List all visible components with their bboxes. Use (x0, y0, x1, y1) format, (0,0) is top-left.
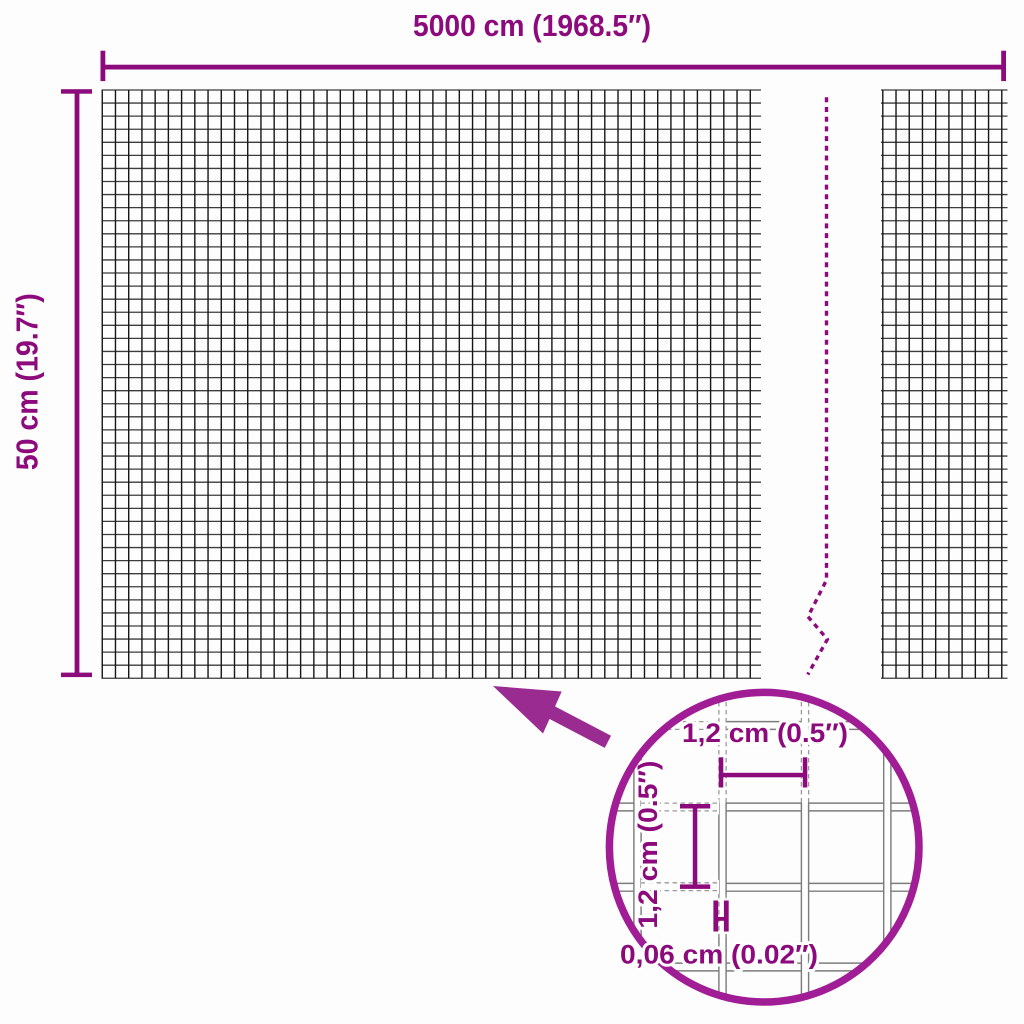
svg-text:5000 cm (1968.5″): 5000 cm (1968.5″) (413, 8, 651, 43)
svg-text:0,06 cm (0.02″): 0,06 cm (0.02″) (620, 940, 818, 970)
svg-text:50 cm (19.7″): 50 cm (19.7″) (10, 293, 45, 470)
svg-text:1,2 cm (0.5″): 1,2 cm (0.5″) (633, 761, 663, 929)
svg-text:1,2 cm (0.5″): 1,2 cm (0.5″) (682, 718, 848, 748)
